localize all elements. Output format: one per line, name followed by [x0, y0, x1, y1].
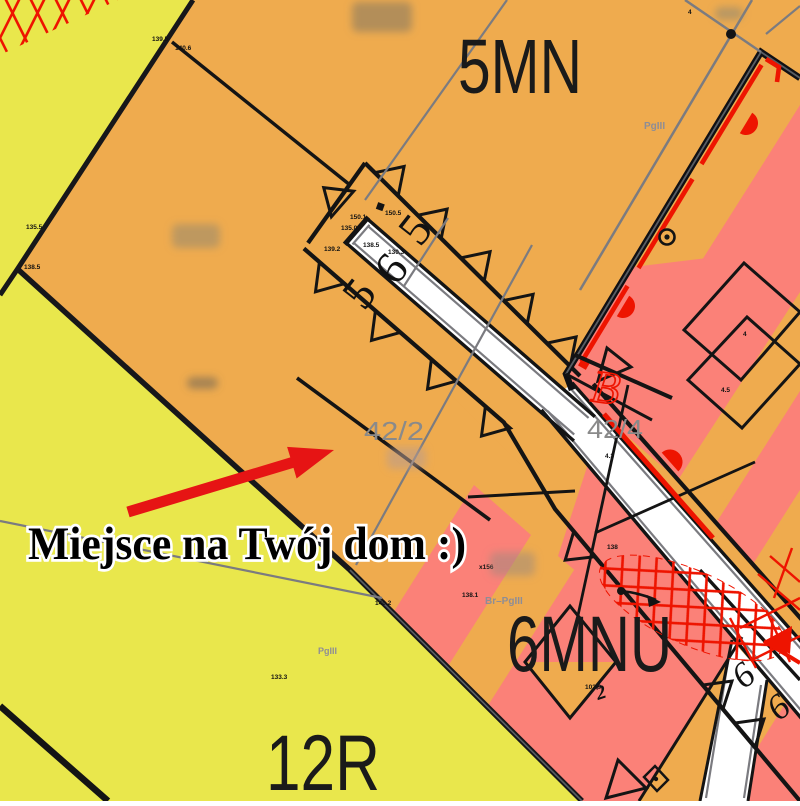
svg-text:4.3: 4.3: [605, 453, 614, 460]
svg-text:139.5: 139.5: [152, 36, 169, 43]
svg-text:130.3: 130.3: [388, 249, 405, 256]
svg-text:Br–PgIII: Br–PgIII: [485, 596, 523, 607]
svg-text:Miejsce na Twój dom :): Miejsce na Twój dom :): [28, 518, 466, 570]
svg-text:138: 138: [607, 544, 618, 551]
svg-text:12R: 12R: [266, 718, 380, 801]
svg-text:138.1: 138.1: [462, 592, 479, 599]
svg-text:133.3: 133.3: [271, 674, 288, 681]
svg-text:42/4: 42/4: [587, 414, 643, 444]
svg-text:150.1: 150.1: [350, 214, 367, 221]
svg-text:139.2: 139.2: [324, 246, 341, 253]
svg-text:138.5: 138.5: [363, 242, 380, 249]
svg-text:138.5: 138.5: [24, 264, 41, 271]
svg-text:4.5: 4.5: [721, 387, 730, 394]
svg-text:PgIII: PgIII: [318, 646, 337, 656]
svg-text:4: 4: [688, 9, 692, 16]
svg-text:140.2: 140.2: [375, 600, 392, 607]
svg-text:140.6: 140.6: [175, 45, 192, 52]
svg-text:135.0: 135.0: [341, 225, 358, 232]
svg-text:PgIII: PgIII: [644, 121, 665, 132]
svg-text:102.9: 102.9: [585, 684, 602, 691]
svg-text:6MNU: 6MNU: [507, 599, 672, 688]
svg-text:4: 4: [743, 331, 747, 338]
svg-text:5MN: 5MN: [458, 24, 582, 110]
svg-text:150.5: 150.5: [385, 210, 402, 217]
svg-text:42/2: 42/2: [364, 416, 424, 446]
svg-text:135.5: 135.5: [26, 224, 43, 231]
